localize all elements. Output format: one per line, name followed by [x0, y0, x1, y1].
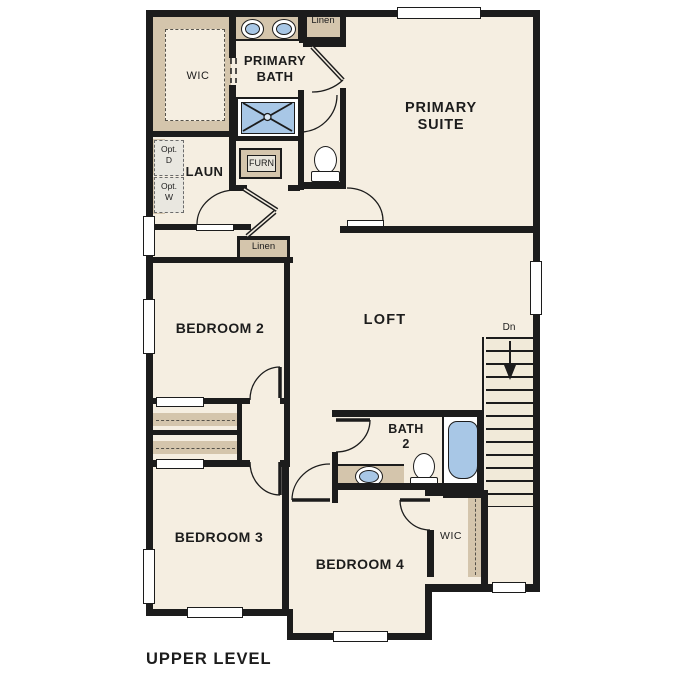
- wall: [298, 182, 346, 189]
- closet-shelf-2: [153, 441, 238, 454]
- sliding-closet-door-bedroom2: [156, 397, 204, 407]
- room-label-bedroom3: BEDROOM 3: [149, 529, 289, 546]
- wall: [340, 88, 346, 188]
- wall: [233, 185, 247, 191]
- optional-washer-space: Opt. W: [154, 177, 184, 213]
- closet-shelf-1: [153, 413, 238, 426]
- wall: [288, 185, 300, 191]
- room-label-primary-suite: PRIMARY SUITE: [381, 100, 501, 135]
- window-bedroom3-left: [143, 549, 155, 604]
- plan-title: UPPER LEVEL: [146, 650, 366, 670]
- linen-upper-label: Linen: [306, 16, 340, 27]
- wall: [242, 398, 250, 404]
- wall: [425, 584, 432, 640]
- wall: [229, 10, 236, 58]
- primary-bath-sink-2-icon: [272, 19, 296, 39]
- wall: [233, 224, 251, 230]
- floor-plan: Linen Opt. D Opt. W FURN Linen: [0, 0, 687, 687]
- bath2-toilet-icon: [413, 453, 435, 480]
- room-label-laundry: LAUN: [172, 164, 237, 180]
- tub-partition-line: [442, 417, 444, 483]
- wall: [146, 131, 236, 137]
- wall: [202, 398, 242, 404]
- window-primary-suite: [397, 7, 481, 19]
- room-label-bedroom4: BEDROOM 4: [290, 556, 430, 573]
- primary-toilet-icon: [314, 146, 337, 174]
- window-stair-landing: [492, 582, 526, 593]
- wall: [299, 13, 305, 43]
- room-label-loft: LOFT: [340, 312, 430, 329]
- primary-toilet-tank: [311, 171, 340, 182]
- primary-bath-sink-1-icon: [241, 19, 264, 39]
- window-bedroom4-bottom: [333, 631, 388, 642]
- room-label-bedroom2: BEDROOM 2: [150, 320, 290, 337]
- wall: [236, 136, 300, 141]
- linen-hall-label: Linen: [240, 242, 287, 253]
- sliding-closet-door-bedroom3: [156, 459, 204, 469]
- wall: [481, 496, 488, 586]
- room-label-primary-bath: PRIMARY BATH: [215, 53, 335, 84]
- wall: [237, 404, 242, 460]
- room-label-bedroom4-wic: WIC: [432, 530, 470, 542]
- wall: [153, 224, 197, 230]
- window-bedroom3-bottom: [187, 607, 243, 618]
- staircase: [486, 337, 533, 507]
- laundry-door-leaf: [196, 224, 234, 231]
- wall: [284, 403, 290, 463]
- room-label-bath2: BATH 2: [376, 422, 436, 452]
- furnace-label: FURN: [247, 155, 276, 172]
- shower-icon: [236, 97, 300, 139]
- wall: [332, 483, 443, 490]
- wall: [146, 257, 293, 263]
- wall: [332, 452, 338, 503]
- room-label-primary-wic: WIC: [179, 70, 217, 83]
- wall: [340, 226, 540, 233]
- wall: [340, 10, 346, 45]
- wall: [202, 460, 250, 467]
- stairs-direction-label: Dn: [495, 322, 523, 334]
- bathtub-icon: [448, 421, 478, 479]
- wall: [146, 430, 242, 435]
- window-hall-left: [143, 216, 155, 256]
- wall: [332, 410, 483, 417]
- wall: [477, 410, 484, 491]
- window-loft-right: [530, 261, 542, 315]
- primary-suite-door-leaf: [347, 220, 384, 227]
